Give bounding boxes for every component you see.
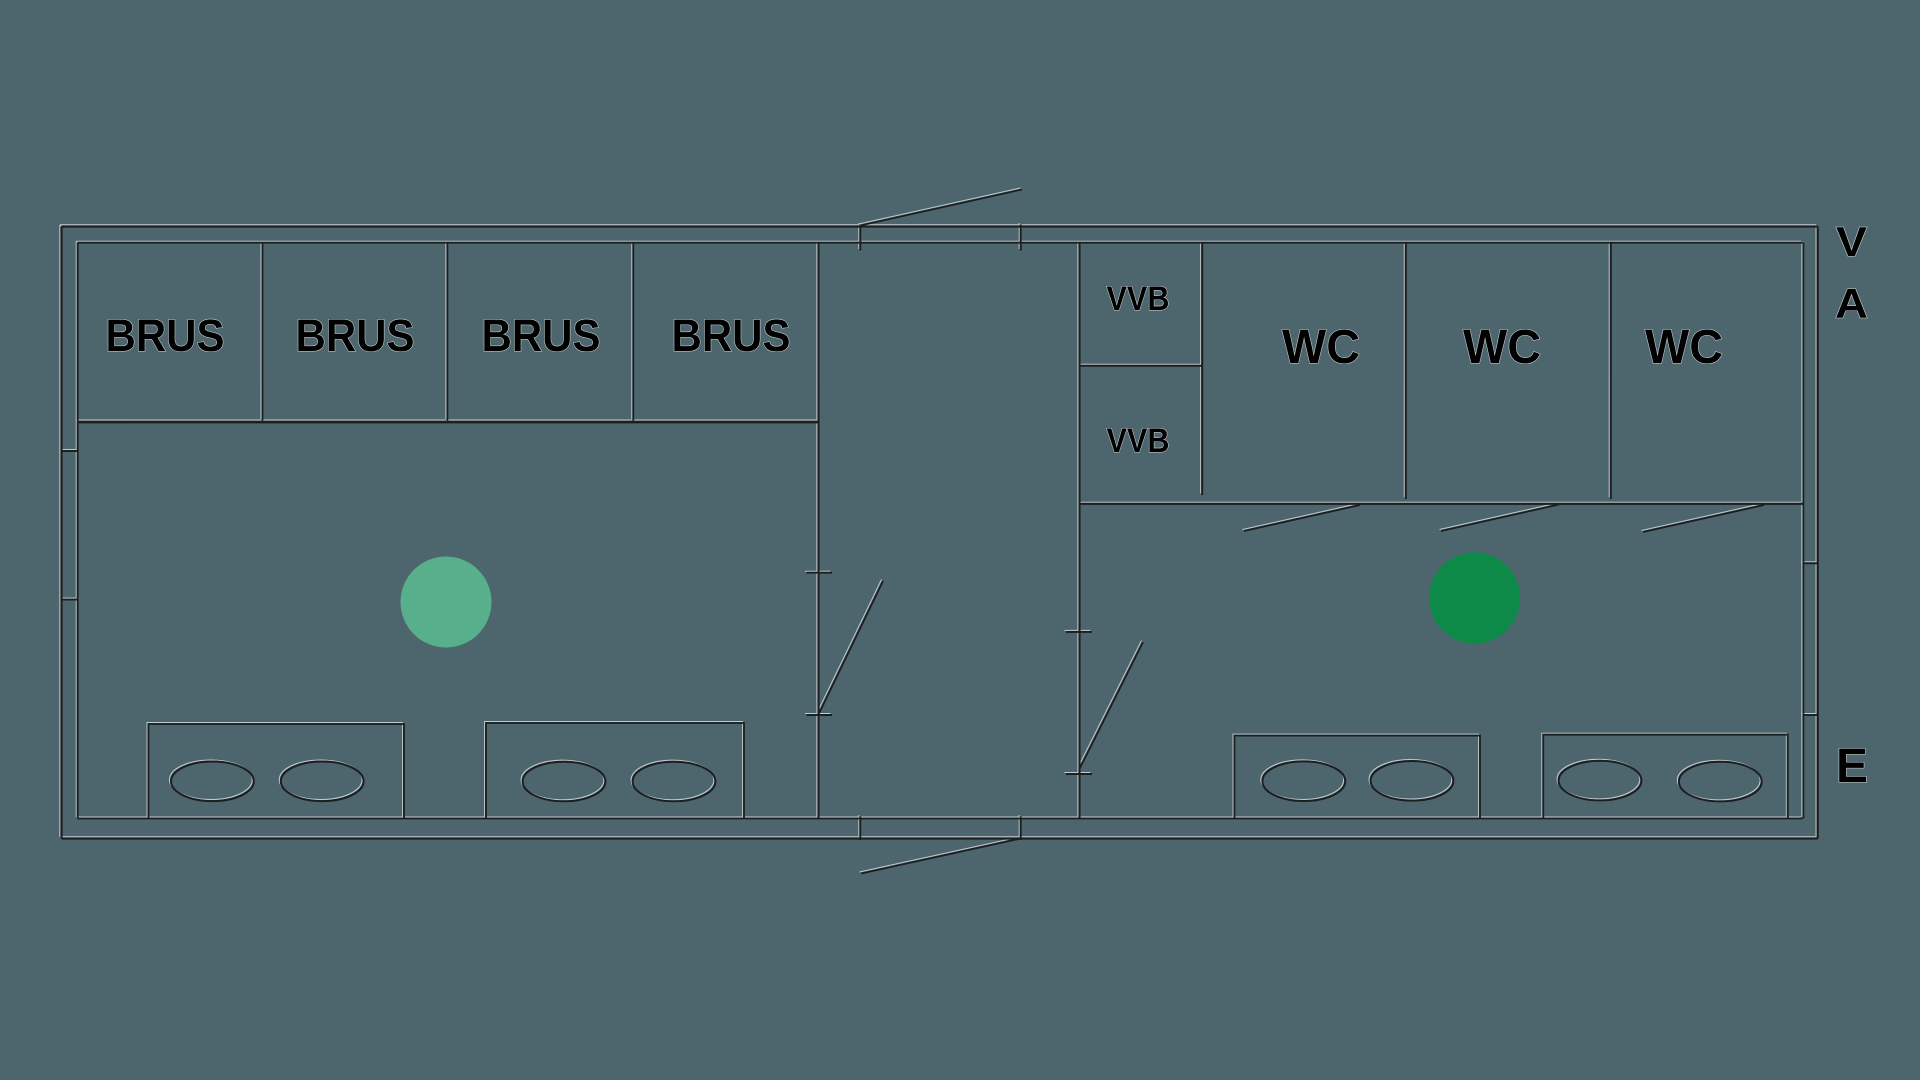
svg-text:WC: WC (1463, 321, 1541, 374)
svg-text:BRUS: BRUS (672, 310, 791, 361)
svg-text:V: V (1836, 218, 1867, 265)
svg-text:VVB: VVB (1107, 422, 1170, 460)
svg-text:E: E (1836, 740, 1868, 793)
svg-text:BRUS: BRUS (296, 310, 415, 361)
svg-text:VVB: VVB (1107, 280, 1170, 318)
svg-text:A: A (1835, 280, 1868, 327)
svg-text:BRUS: BRUS (482, 310, 601, 361)
svg-text:WC: WC (1282, 321, 1360, 374)
svg-text:WC: WC (1645, 321, 1723, 374)
svg-text:BRUS: BRUS (106, 310, 225, 361)
